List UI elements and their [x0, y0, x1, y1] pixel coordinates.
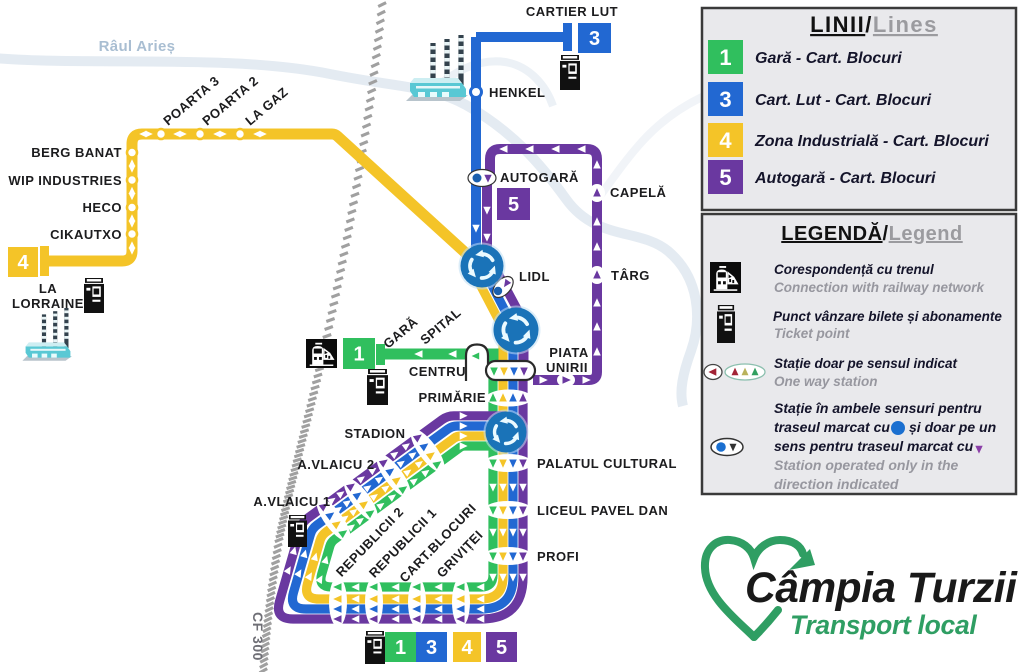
svg-text:LIDL: LIDL [519, 269, 550, 284]
svg-text:Stație doar pe sensul indicat: Stație doar pe sensul indicat [774, 356, 958, 371]
svg-text:A.VLAICU 2: A.VLAICU 2 [297, 457, 374, 472]
svg-text:HECO: HECO [82, 200, 122, 215]
svg-text:5: 5 [719, 165, 731, 190]
svg-text:CENTRU: CENTRU [409, 364, 466, 379]
svg-text:1: 1 [719, 45, 731, 70]
svg-text:Autogară - Cart. Blocuri: Autogară - Cart. Blocuri [754, 170, 936, 187]
svg-text:PRIMĂRIE: PRIMĂRIE [418, 390, 486, 405]
svg-text:Gară - Cart. Blocuri: Gară - Cart. Blocuri [755, 50, 902, 67]
svg-text:One way station: One way station [774, 374, 878, 389]
svg-text:LINII/Lines: LINII/Lines [810, 12, 938, 37]
svg-text:HENKEL: HENKEL [489, 85, 545, 100]
svg-text:BERG BANAT: BERG BANAT [31, 145, 122, 160]
svg-text:5: 5 [496, 637, 507, 659]
svg-text:PALATUL CULTURAL: PALATUL CULTURAL [537, 456, 677, 471]
svg-text:Connection with railway networ: Connection with railway network [774, 280, 986, 295]
svg-text:CARTIER LUT: CARTIER LUT [526, 4, 618, 19]
svg-text:STADION: STADION [344, 426, 405, 441]
svg-text:UNIRII: UNIRII [546, 360, 588, 375]
svg-text:Punct vânzare bilete și abonam: Punct vânzare bilete și abonamente [773, 309, 1002, 324]
svg-text:PROFI: PROFI [537, 549, 579, 564]
svg-text:3: 3 [589, 28, 600, 50]
svg-text:4: 4 [719, 128, 732, 153]
svg-text:Stație în ambele sensuri pentr: Stație în ambele sensuri pentru [774, 400, 982, 416]
svg-text:AUTOGARĂ: AUTOGARĂ [500, 170, 579, 185]
svg-text:LEGENDĂ/Legend: LEGENDĂ/Legend [781, 222, 962, 245]
svg-text:WIP INDUSTRIES: WIP INDUSTRIES [8, 173, 122, 188]
svg-text:Cart. Lut - Cart. Blocuri: Cart. Lut - Cart. Blocuri [755, 92, 932, 109]
svg-text:TÂRG: TÂRG [611, 268, 650, 283]
svg-text:direction indicated: direction indicated [774, 476, 899, 492]
svg-text:1: 1 [353, 344, 364, 366]
svg-text:4: 4 [17, 252, 29, 274]
svg-text:1: 1 [395, 637, 406, 659]
svg-text:A.VLAICU 1: A.VLAICU 1 [253, 494, 330, 509]
svg-text:Station operated only in the: Station operated only in the [774, 457, 959, 473]
svg-text:CIKAUTXO: CIKAUTXO [50, 227, 122, 242]
svg-text:4: 4 [461, 637, 473, 659]
svg-text:sens pentru traseul marcat cu: sens pentru traseul marcat cu [774, 438, 974, 454]
svg-text:Ticket point: Ticket point [774, 326, 850, 341]
svg-text:CAPELĂ: CAPELĂ [610, 185, 667, 200]
svg-text:LICEUL PAVEL DAN: LICEUL PAVEL DAN [537, 503, 668, 518]
svg-text:Câmpia Turzii: Câmpia Turzii [745, 565, 1018, 612]
svg-text:LORRAINE: LORRAINE [12, 296, 84, 311]
svg-text:3: 3 [426, 637, 437, 659]
svg-text:Corespondență cu trenul: Corespondență cu trenul [774, 262, 934, 277]
svg-text:și doar pe un: și doar pe un [909, 419, 996, 435]
svg-text:Râul Arieș: Râul Arieș [99, 38, 176, 55]
svg-text:traseul marcat cu: traseul marcat cu [774, 419, 890, 435]
svg-text:3: 3 [719, 87, 731, 112]
svg-text:PIATA: PIATA [549, 345, 589, 360]
svg-text:LA: LA [39, 281, 57, 296]
svg-text:Transport local: Transport local [790, 610, 977, 640]
svg-text:CF 300: CF 300 [250, 612, 266, 661]
svg-text:Zona Industrială - Cart. Blocu: Zona Industrială - Cart. Blocuri [754, 133, 989, 150]
svg-text:5: 5 [508, 194, 519, 216]
